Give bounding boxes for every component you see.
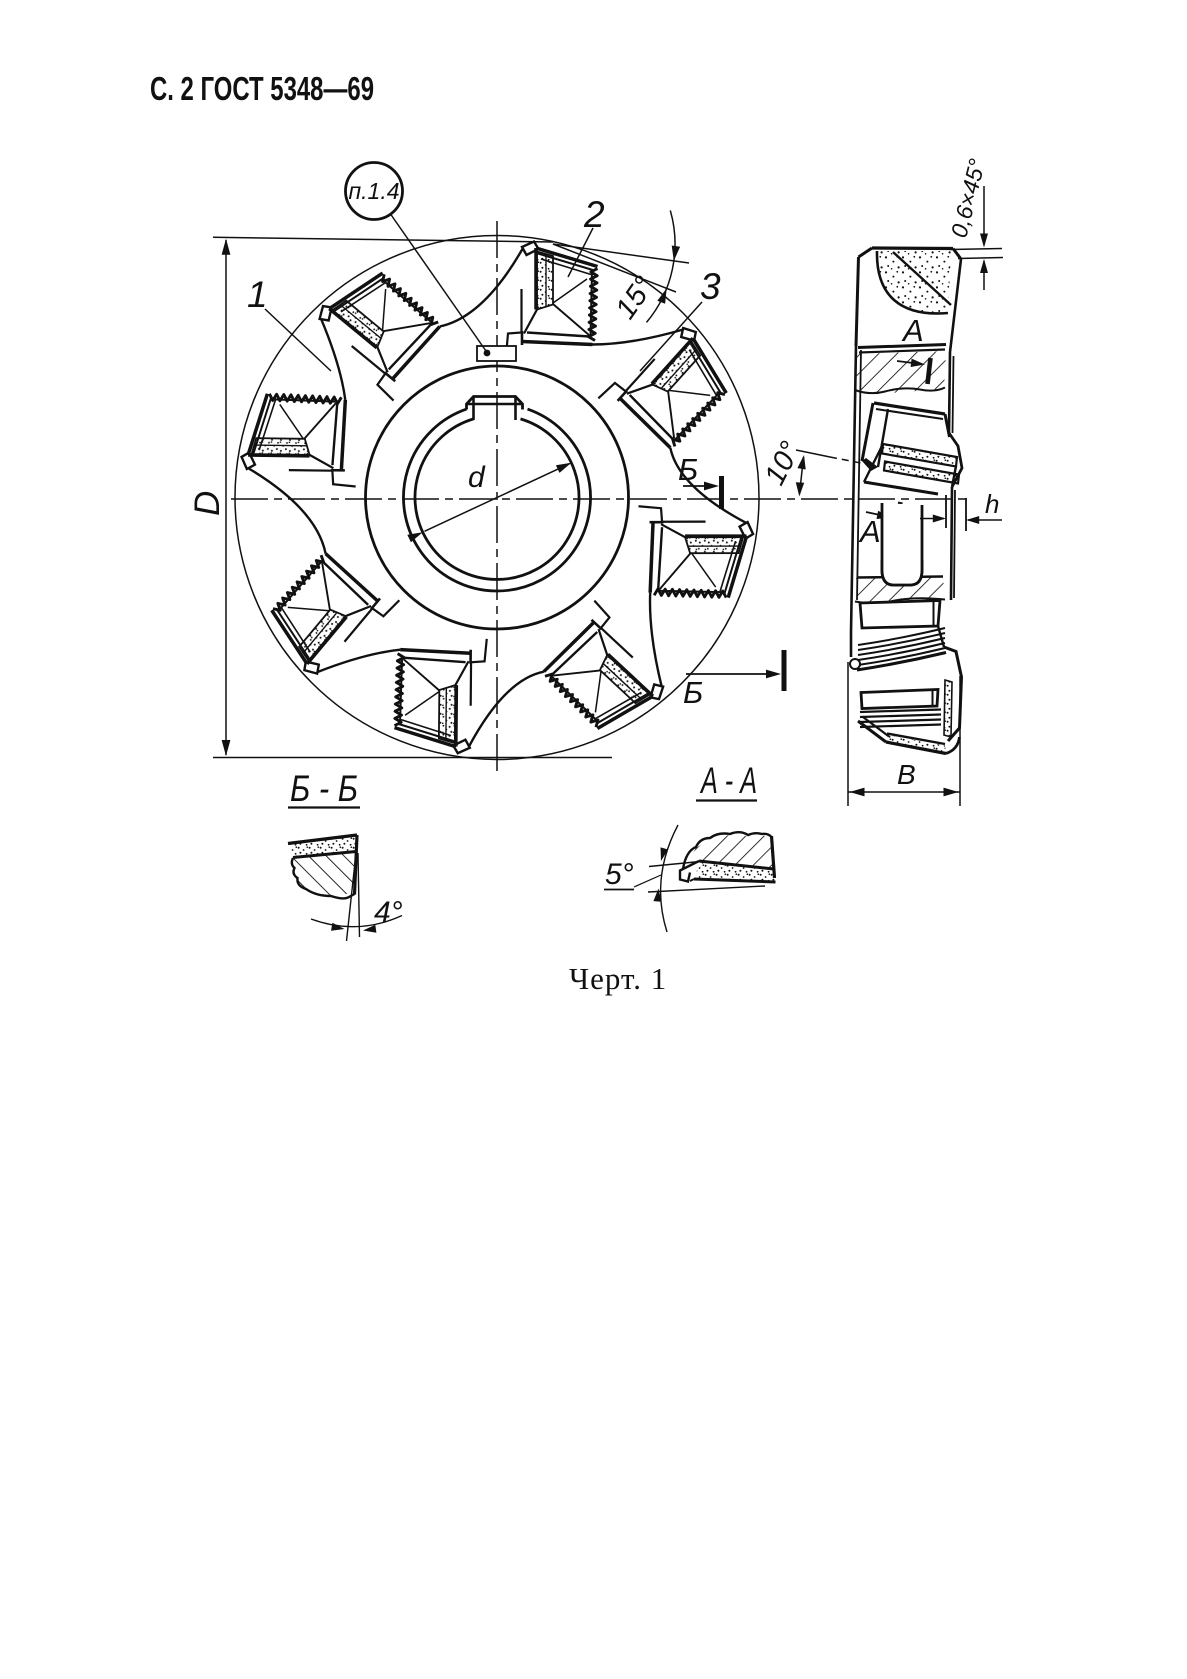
svg-text:п.1.4: п.1.4 [348,178,399,204]
svg-text:5°: 5° [605,858,634,891]
svg-text:1: 1 [247,274,268,315]
svg-text:А - А: А - А [700,760,757,801]
svg-text:В: В [897,759,916,790]
svg-text:d: d [468,461,486,494]
svg-text:Б: Б [678,452,698,487]
svg-text:Б: Б [683,675,703,710]
svg-text:3: 3 [700,266,721,307]
svg-text:А: А [901,313,924,348]
svg-text:h: h [985,489,999,519]
svg-text:С. 2 ГОСТ 5348—69: С. 2 ГОСТ 5348—69 [150,70,374,107]
svg-text:2: 2 [583,194,605,235]
svg-text:D: D [188,491,227,516]
svg-text:Б - Б: Б - Б [290,768,358,809]
svg-text:А: А [858,514,881,549]
svg-text:Черт. 1: Черт. 1 [569,961,667,996]
svg-text:4°: 4° [374,896,403,929]
